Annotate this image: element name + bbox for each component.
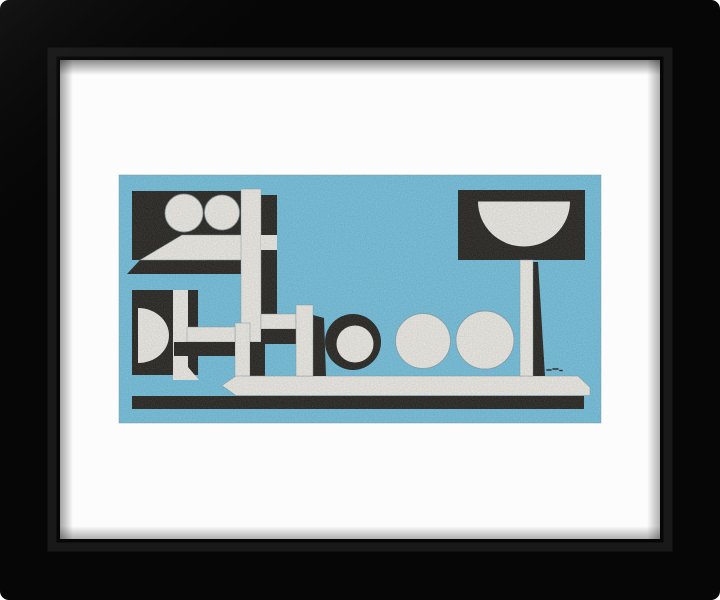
diagonal-bar-shadow [127, 260, 250, 274]
top-circle-2 [205, 195, 240, 230]
mat-shadow-bottom [60, 526, 660, 539]
left-arm [187, 327, 235, 342]
numeral-one [296, 305, 313, 376]
column-shadow [261, 195, 277, 314]
stem [520, 260, 533, 376]
right-arm [261, 314, 296, 329]
descending-strip-shadow [250, 342, 265, 377]
bottom-bar [222, 376, 590, 396]
disc-circle-2 [456, 311, 514, 369]
left-arm-shadow [174, 342, 235, 356]
column-stub [261, 235, 277, 250]
square-edge-strip [173, 290, 188, 380]
numeral-one-shadow [313, 315, 326, 376]
top-circle-1 [165, 194, 203, 232]
painting [119, 175, 601, 423]
bottom-bar-shadow [132, 396, 584, 409]
tall-column [241, 189, 261, 342]
framed-artwork [0, 0, 720, 600]
mat-shadow-left [60, 60, 73, 539]
ring-inner [337, 326, 374, 363]
mat-shadow-right [647, 60, 660, 539]
descending-strip [235, 323, 250, 377]
disc-circle-1 [396, 314, 451, 369]
mat-shadow-top [60, 60, 660, 75]
right-arm-shadow [261, 329, 296, 344]
